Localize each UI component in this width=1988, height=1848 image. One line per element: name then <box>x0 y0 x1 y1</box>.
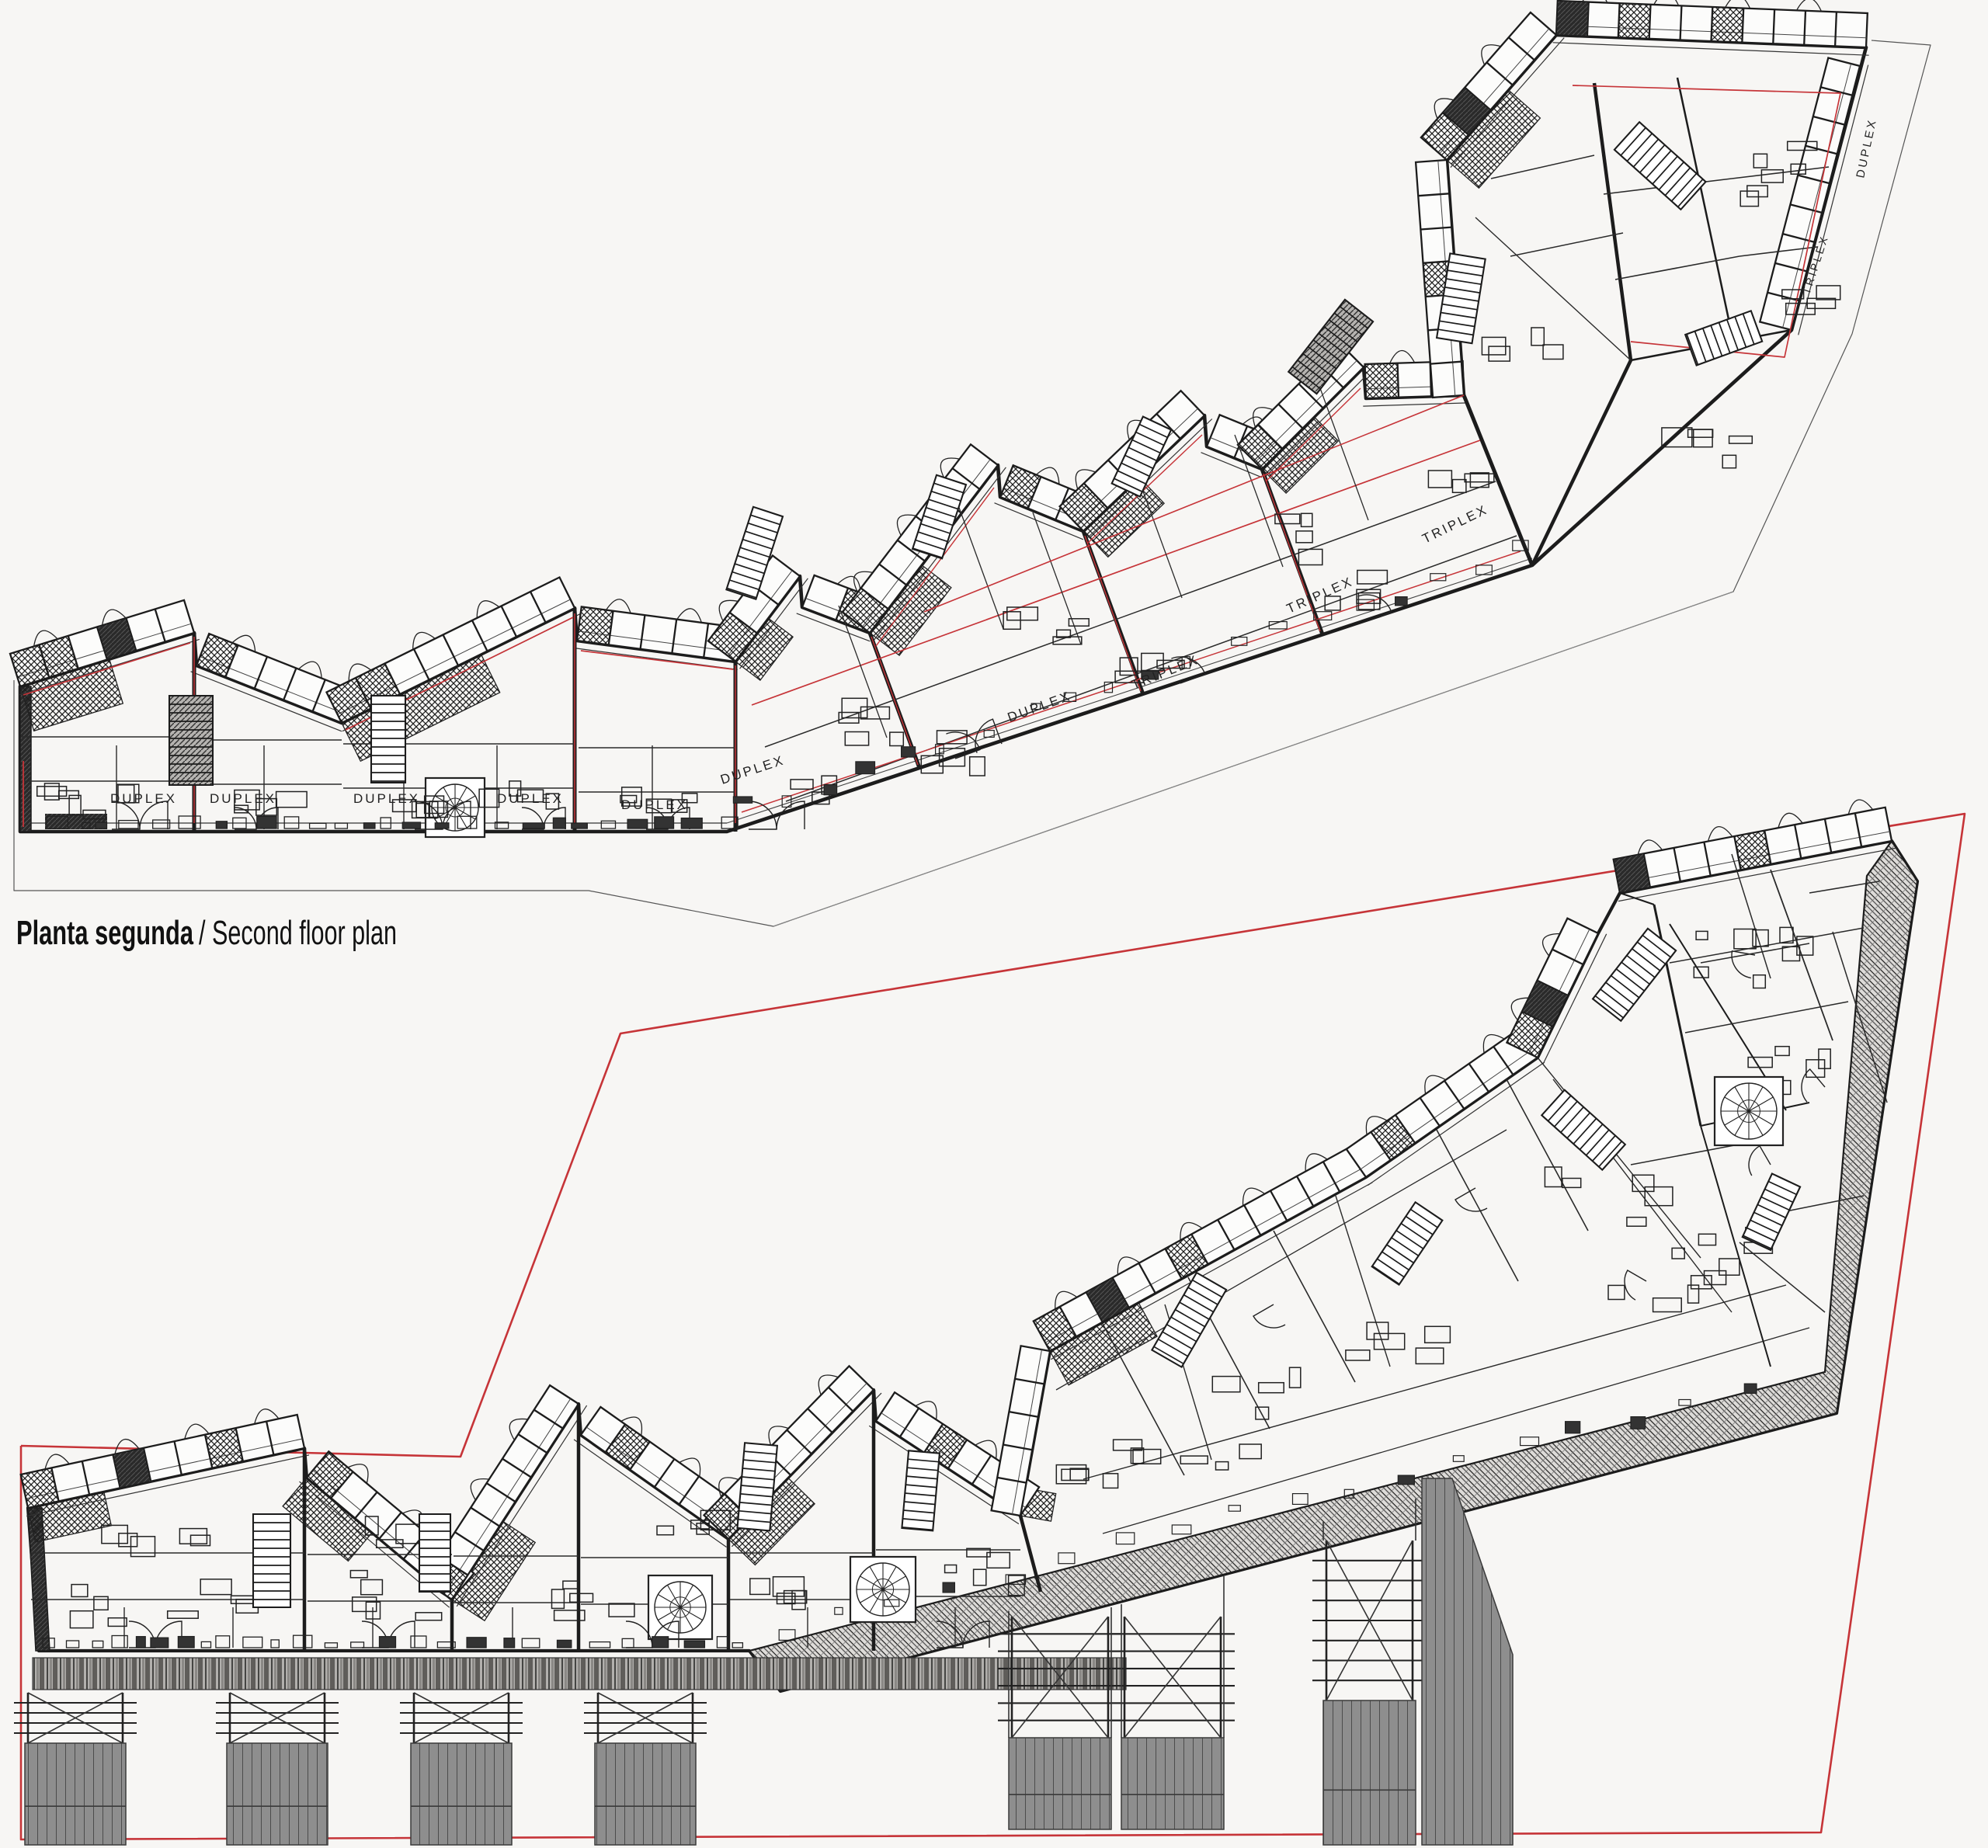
svg-text:DUPLEX: DUPLEX <box>497 791 564 806</box>
svg-text:DUPLEX: DUPLEX <box>210 791 276 806</box>
svg-text:/ Second floor plan: / Second floor plan <box>199 914 397 952</box>
svg-text:DUPLEX: DUPLEX <box>110 791 177 806</box>
svg-text:DUPLEX: DUPLEX <box>621 797 688 812</box>
svg-text:DUPLEX: DUPLEX <box>353 791 420 806</box>
svg-text:Planta segunda: Planta segunda <box>16 914 193 952</box>
